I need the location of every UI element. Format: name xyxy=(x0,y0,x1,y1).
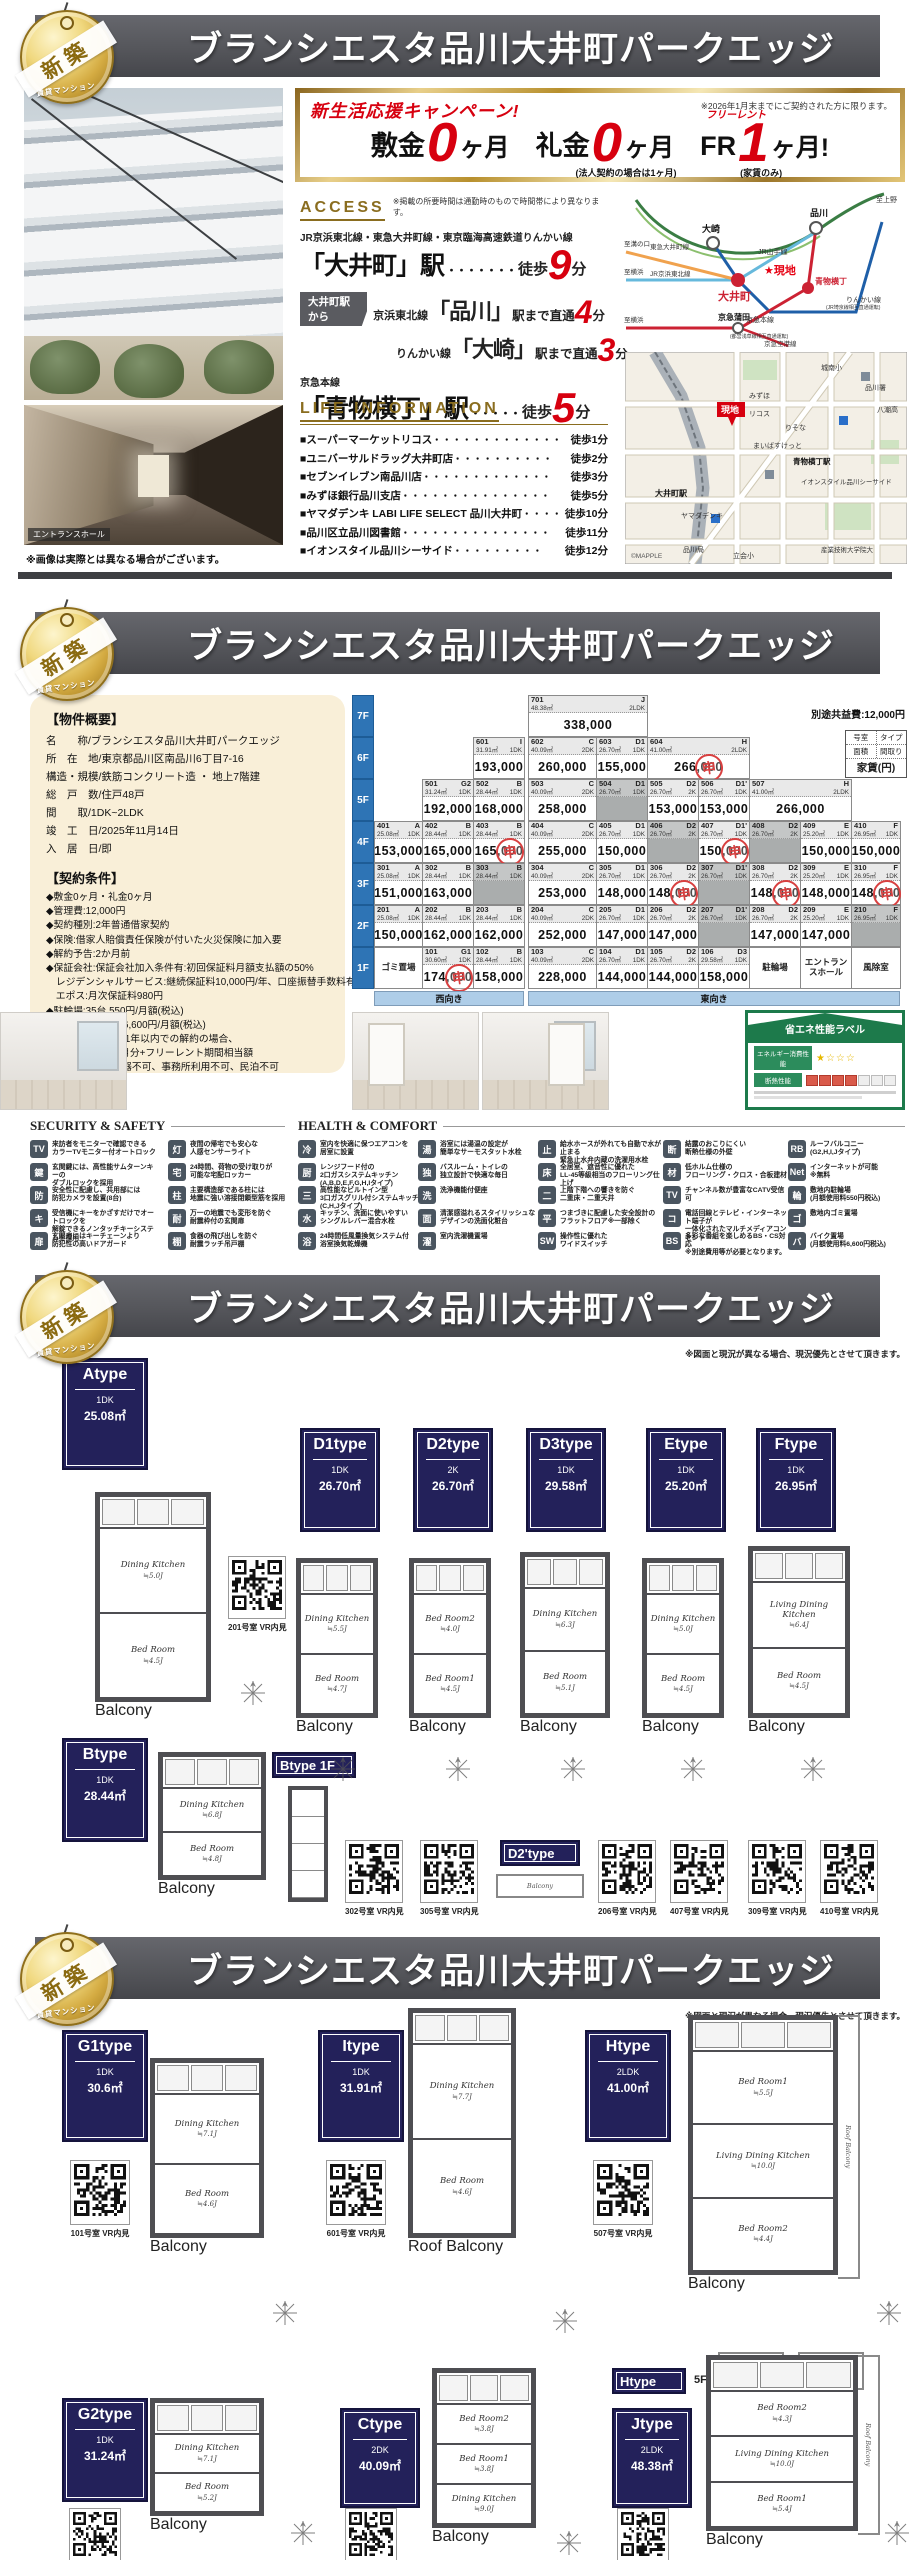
type-badge-d2'type: D2'type xyxy=(500,1840,580,1866)
line-label: 京浜東北線 xyxy=(373,307,428,323)
unit-plan: 1DK xyxy=(510,957,522,965)
unit-header: 402B xyxy=(423,822,473,831)
unit-header: 306D2 xyxy=(648,864,698,873)
terms-row: エポス:月次保証料980円 xyxy=(46,990,331,1004)
feature-item: SW操作性に優れたワイドスイッチ xyxy=(538,1232,666,1250)
room-label: Bed Room2 xyxy=(459,2415,509,2424)
security-heading: SECURITY & SAFETY xyxy=(30,1118,285,1134)
unit-cell-601: 601I31.91㎡1DK193,000 xyxy=(473,737,525,779)
plan-wall xyxy=(292,1844,324,1871)
unit-area: 25.08㎡ xyxy=(377,915,399,923)
feature-text: 主要構造部である柱には地震に強い溶接閉鎖型筋を採用 xyxy=(190,1186,285,1203)
map-label: イオンスタイル品川シーサイド xyxy=(801,477,892,486)
unit-header: 506D1' xyxy=(699,780,749,789)
interior-photo xyxy=(482,1012,609,1110)
plan-room: Bed Room2≒4.0J xyxy=(414,1595,486,1655)
unit-area: 41.00㎡ xyxy=(650,747,672,755)
unit-header: 310F xyxy=(852,864,900,873)
terms-row: ◆保証会社:保証会社加入条件有:初回保証料月額支払額の50% xyxy=(46,962,331,976)
unit-cell-505: 505D226.70㎡2K153,000 xyxy=(647,779,699,821)
unit-plan: 1DK xyxy=(408,831,420,839)
panel1-title-bar: ブランシエスタ品川大井町パークエッジ xyxy=(35,15,880,77)
type-badge-etype: Etype1DK25.20㎡ xyxy=(646,1428,726,1532)
unit-cell-410: 410F26.95㎡1DK150,000 xyxy=(851,821,901,863)
kitchen-box xyxy=(225,2405,257,2431)
vr-qr-12: 302号室 VR内見 xyxy=(345,1840,404,1917)
qr-caption: 302号室 VR内見 xyxy=(345,1906,404,1917)
unit-plan: 2DK xyxy=(582,915,594,923)
feature-text: 低ホルム仕様のフローリング・クロス・合板建材 xyxy=(685,1163,787,1180)
unit-header: 208D2 xyxy=(750,906,800,915)
plan-room: Bed Room2≒4.3J xyxy=(711,2392,853,2437)
unit-no: 206 xyxy=(650,906,663,915)
bath-box xyxy=(527,1559,551,1585)
unit-type: D1 xyxy=(635,780,645,789)
panel3-title-bar: ブランシエスタ品川大井町パークエッジ xyxy=(35,1275,880,1337)
unit-price: 147,000 xyxy=(801,923,851,946)
balcony: Balcony xyxy=(432,2528,536,2546)
plan-room: Living Dining Kitchen≒10.0J xyxy=(711,2437,853,2482)
direct-osaki: りんかい線 「大崎」 駅まで直通 3 分 xyxy=(396,332,605,364)
type-area: 26.70㎡ xyxy=(319,1477,361,1494)
unit-type: F xyxy=(893,822,898,831)
unit-cell-308: 308D226.70㎡2K148,000申 xyxy=(749,863,801,905)
unit-no: 501 xyxy=(425,780,438,789)
campaign-suffix: ヶ月 xyxy=(460,136,510,161)
balcony-row: Balcony xyxy=(432,2528,536,2546)
unit-header: 201A xyxy=(375,906,422,915)
plan-wall xyxy=(292,1871,324,1898)
facility-cell: ゴミ置場 xyxy=(374,947,423,989)
unit-area: 28.44㎡ xyxy=(476,873,498,881)
unit-area: 26.70㎡ xyxy=(701,873,723,881)
unit-cell-105: 105D226.70㎡2K144,000 xyxy=(647,947,699,989)
room-label: Bed Room2 xyxy=(757,2404,807,2413)
feature-text: 多彩な番組を楽しめるBS・CS対応※別途費用等が必要となります。 xyxy=(685,1232,791,1258)
station-name: 「品川」 xyxy=(428,294,512,326)
free-rent-label: フリーレント xyxy=(706,106,766,121)
floor-plan-G2: Dining Kitchen≒7.1JBed Room≒5.2J xyxy=(150,2398,264,2516)
unit-price: 193,000 xyxy=(474,755,524,778)
room-size: ≒3.8J xyxy=(474,2425,494,2433)
unit-area: 26.95㎡ xyxy=(854,915,876,923)
room-label: Dining Kitchen xyxy=(430,2082,495,2091)
feature-text: 夜間の帰宅でも安心な人感センサーライト xyxy=(190,1140,258,1157)
life-list-item: ■ユニバーサルドラッグ大井町店・・・・・・・・・・徒歩2分 xyxy=(300,450,608,469)
unit-subheader: 40.09㎡2DK xyxy=(529,957,596,966)
unit-area: 25.20㎡ xyxy=(803,915,825,923)
map-label: 立会小 xyxy=(733,551,754,560)
plan-room: Living Dining Kitchen≒10.0J xyxy=(693,2125,833,2198)
balcony-row: Balcony xyxy=(95,1702,211,1720)
kitchen-box xyxy=(696,1565,717,1591)
unit-area: 28.44㎡ xyxy=(476,789,498,797)
plan-room: Bed Room≒4.8J xyxy=(163,1833,261,1875)
kitchen-box xyxy=(479,2015,509,2041)
unit-subheader: 40.09㎡2DK xyxy=(529,915,596,924)
line-label: りんかい線 xyxy=(396,345,451,361)
campaign-item: フリーレントFR1ヶ月!(家賃のみ) xyxy=(700,119,829,166)
unit-no: 103 xyxy=(531,948,544,957)
room-label: Bed Room1 xyxy=(459,2455,509,2464)
unit-area: 26.70㎡ xyxy=(650,831,672,839)
health-heading-text: HEALTH & COMFORT xyxy=(298,1118,437,1134)
page-title: ブランシエスタ品川大井町パークエッジ xyxy=(187,21,835,72)
security-heading-text: SECURITY & SAFETY xyxy=(30,1118,165,1134)
terms-row: ◆管理費:12,000円 xyxy=(46,905,331,919)
unit-area: 25.20㎡ xyxy=(803,873,825,881)
balcony-label: Balcony xyxy=(409,1718,466,1735)
unit-no: 302 xyxy=(425,864,438,873)
kitchen-box xyxy=(787,2022,831,2048)
unit-subheader: 41.00㎡2LDK xyxy=(648,747,749,756)
unit-price xyxy=(750,839,800,862)
feature-text: 洗浄機能付便座 xyxy=(440,1186,488,1195)
unit-area: 26.70㎡ xyxy=(701,915,723,923)
qr-code xyxy=(228,1556,286,1619)
unit-area: 28.44㎡ xyxy=(425,873,447,881)
unit-price: 253,000 xyxy=(529,881,596,904)
balcony-row: Balcony xyxy=(158,1880,266,1898)
unit-plan: 1DK xyxy=(633,747,645,755)
life-list-item: ■ヤマダデンキ LABI LIFE SELECT 品川大井町・・・・徒歩10分 xyxy=(300,505,608,524)
qr-code xyxy=(420,1840,478,1903)
legend-plan: 間取り xyxy=(876,745,907,758)
delivery-locker-icon: 宅 xyxy=(168,1163,186,1181)
plan-room: Bed Room1≒3.8J xyxy=(437,2445,531,2485)
unit-price: 148,000 xyxy=(597,881,647,904)
feature-text: 来訪者をモニターで確認できるカラーTVモニター付オートロック xyxy=(52,1140,156,1157)
plan-wet-area xyxy=(413,2013,511,2045)
tv-monitor-autolock-icon: TV xyxy=(30,1140,48,1158)
feature-text: 上階下階への響きを防ぐ二重床・二重天井 xyxy=(560,1186,635,1203)
room-size: ≒4.5J xyxy=(673,1685,693,1693)
unit-area: 40.09㎡ xyxy=(531,789,553,797)
unit-subheader: 26.95㎡1DK xyxy=(852,831,900,840)
room-label: Dining Kitchen xyxy=(533,1610,598,1619)
map-label: まいばすけっと xyxy=(753,441,802,450)
unit-cell-403: 403B28.44㎡1DK165,000申 xyxy=(473,821,525,863)
plan-wet-area xyxy=(693,2020,833,2052)
unit-cell-304: 304C40.09㎡2DK253,000 xyxy=(528,863,597,905)
feature-item: TVチャンネル数が豊富なCATV受信可 xyxy=(663,1186,791,1204)
balcony-label: Balcony xyxy=(150,2238,207,2255)
map-label: 品川局 xyxy=(683,546,704,554)
floor-label: 3F xyxy=(352,863,374,905)
unit-no: 502 xyxy=(476,780,489,789)
room-size: ≒7.1J xyxy=(197,2455,217,2463)
unit-area: 26.70㎡ xyxy=(752,915,774,923)
unit-subheader: 26.95㎡1DK xyxy=(852,873,900,882)
type-name: Htype xyxy=(620,2374,656,2389)
feature-text: チャンネル数が豊富なCATV受信可 xyxy=(685,1186,791,1203)
unit-type: A xyxy=(415,906,420,915)
site-marker-label: ★現地 xyxy=(764,263,796,277)
toilet-box xyxy=(439,1565,460,1591)
poi-name: ■イオンスタイル品川シーサイド xyxy=(300,542,453,561)
unit-cell-405: 405D126.70㎡1DK150,000 xyxy=(596,821,648,863)
badge-divider xyxy=(769,1459,823,1460)
unit-area: 41.00㎡ xyxy=(752,789,774,797)
unit-subheader: 26.70㎡1DK xyxy=(699,915,749,924)
unit-price: 338,000 xyxy=(529,713,647,736)
unit-type: I xyxy=(520,738,522,747)
qr-caption: 201号室 VR内見 xyxy=(228,1622,287,1633)
unit-area: 28.44㎡ xyxy=(476,957,498,965)
room-size: ≒5.0J xyxy=(143,1572,163,1580)
unit-type: B xyxy=(466,864,471,873)
flyer-canvas: ブランシエスタ品川大井町パークエッジ 新築 賃貸マンション エントランスホール … xyxy=(0,0,911,2560)
qr-code xyxy=(598,1840,656,1903)
plan-room: Dining Kitchen≒7.7J xyxy=(413,2045,511,2140)
unit-cell-501: 501G231.24㎡1DK192,000 xyxy=(422,779,474,821)
walk-time: 徒歩12分 xyxy=(565,542,608,561)
unit-no: 503 xyxy=(531,780,544,789)
balcony: Balcony xyxy=(520,1718,610,1736)
type-badge-g2type: G2type1DK31.24㎡ xyxy=(62,2398,148,2502)
balcony: Balcony xyxy=(296,1718,378,1736)
unit-price: 252,000 xyxy=(529,923,596,946)
qr-caption: 309号室 VR内見 xyxy=(748,1906,807,1917)
unit-area: 31.91㎡ xyxy=(476,747,498,755)
room-size: ≒9.0J xyxy=(474,2505,494,2513)
unit-plan: 2DK xyxy=(582,873,594,881)
unit-header: 604H xyxy=(648,738,749,747)
feature-text: バイク置場(月額使用料6,600円税込) xyxy=(810,1232,886,1249)
toilet-box xyxy=(741,2022,785,2048)
unit-cell-307: 307D1'26.70㎡1DK xyxy=(698,863,750,905)
roof-balcony-label: Roof Balcony xyxy=(864,2423,872,2466)
room-label: Bed Room xyxy=(315,1675,359,1684)
feature-text: 給水ホースが外れても自動で水が止まる緊急止水弁内蔵の洗濯用水栓 xyxy=(560,1140,666,1166)
unit-price: 163,000 xyxy=(423,881,473,904)
plan-room: Dining Kitchen≒6.8J xyxy=(163,1789,261,1833)
minutes-unit: 分 xyxy=(592,305,605,324)
qr-code xyxy=(70,2160,130,2225)
floor-label: 5F xyxy=(352,779,374,821)
plan-room: Dining Kitchen≒7.1J xyxy=(155,2095,259,2165)
outline-row: 構造・規模/鉄筋コンクリート造 ・ 地上7階建 xyxy=(46,768,331,786)
floor-plan-F: Living Dining Kitchen≒6.4JBed Room≒4.5J xyxy=(748,1546,850,1718)
unit-price: 153,000 xyxy=(648,797,698,820)
bath-box xyxy=(713,2362,758,2388)
type-area: 26.70㎡ xyxy=(432,1477,474,1494)
unit-header: 204C xyxy=(529,906,596,915)
badge-divider xyxy=(353,2439,407,2440)
type-badge-jtype: Jtype2LDK48.38㎡ xyxy=(612,2408,692,2508)
bath-box xyxy=(695,2022,739,2048)
type-plan: 1DK xyxy=(96,1395,114,1405)
feature-text: 清潔感溢れるスタイリッシュなデザインの洗面化粧台 xyxy=(440,1209,535,1226)
unit-plan: 1DK xyxy=(837,915,849,923)
vr-qr-23: 507号室 VR内見 xyxy=(593,2160,653,2239)
table-floor-row: 2F201A25.08㎡1DK150,000202B28.44㎡1DK162,0… xyxy=(352,905,908,947)
map-label-oimachi-sta: 大井町駅 xyxy=(655,488,688,498)
unit-no: 506 xyxy=(701,780,714,789)
direct-label: 駅まで直通 xyxy=(512,305,575,324)
walk-time: 徒歩11分 xyxy=(565,524,608,543)
line-yamanote: JR山手線 xyxy=(758,247,788,256)
unit-header: 403B xyxy=(474,822,524,831)
plan-body: Dining Kitchen≒5.0JBed Room≒4.5J xyxy=(642,1558,724,1718)
qr-code xyxy=(69,2508,121,2560)
room-label: Bed Room1 xyxy=(757,2495,807,2504)
unit-price: 147,000 xyxy=(648,923,698,946)
room-size: ≒6.4J xyxy=(789,1621,809,1629)
type-badge-ftype: Ftype1DK26.95㎡ xyxy=(756,1428,836,1532)
plan-body: Dining Kitchen≒7.1JBed Room≒4.6J xyxy=(150,2058,264,2238)
unit-header: 404C xyxy=(529,822,596,831)
unit-subheader: 30.60㎡1DK xyxy=(423,957,473,966)
catv-icon: TV xyxy=(663,1186,681,1204)
unit-area: 25.20㎡ xyxy=(803,831,825,839)
room-size: ≒4.0J xyxy=(440,1625,460,1633)
campaign-banner: 新生活応援キャンペーン! ※2026年1月末までにご契約された方に限ります。 敷… xyxy=(295,88,905,182)
unit-header: 106D3 xyxy=(699,948,749,957)
unit-no: 402 xyxy=(425,822,438,831)
garbage-site-icon: ゴ xyxy=(788,1209,806,1227)
feature-text: レンジフード付の2口ガスシステムキッチン(A,B,D,E,F,G,H,Iタイプ) xyxy=(320,1163,398,1189)
qr-caption: 305号室 VR内見 xyxy=(420,1906,479,1917)
plan-wall xyxy=(292,1817,324,1844)
unit-no: 404 xyxy=(531,822,544,831)
unit-area: 28.44㎡ xyxy=(476,915,498,923)
station-oimachi: 大井町 xyxy=(718,289,751,303)
energy-label-title: 省エネ性能ラベル xyxy=(748,1013,902,1043)
unit-type: D2 xyxy=(686,948,696,957)
line-keikyu-note: (都営浅草線相互直通運転) xyxy=(730,333,789,340)
unit-price: 151,000 xyxy=(375,881,422,904)
unit-area: 26.70㎡ xyxy=(701,831,723,839)
room-size: ≒4.4J xyxy=(753,2235,773,2243)
unit-type: D1' xyxy=(736,906,747,915)
unit-area: 26.70㎡ xyxy=(599,747,621,755)
orientation-west: 西向き xyxy=(374,991,524,1006)
page-title: ブランシエスタ品川大井町パークエッジ xyxy=(187,1281,835,1332)
unit-plan: 1DK xyxy=(837,831,849,839)
type-area: 31.91㎡ xyxy=(340,2079,382,2096)
unit-subheader: 26.70㎡1DK xyxy=(699,789,749,798)
feature-item: 二上階下階への響きを防ぐ二重床・二重天井 xyxy=(538,1186,666,1204)
direct-shinagawa: 京浜東北線 「品川」 駅まで直通 4 分 xyxy=(373,294,605,326)
campaign-suffix: ヶ月! xyxy=(771,136,829,161)
unit-cell-310: 310F26.95㎡1DK148,000申 xyxy=(851,863,901,905)
unit-subheader: 25.08㎡1DK xyxy=(375,831,422,840)
type-plan: 1DK xyxy=(557,1465,575,1475)
unit-header: 405D1 xyxy=(597,822,647,831)
unit-header: 202B xyxy=(423,906,473,915)
unit-cell-202: 202B28.44㎡1DK162,000 xyxy=(422,905,474,947)
type-plan: 2DK xyxy=(371,2445,389,2455)
feature-text: 結露のおこりにくい断熱仕様の外壁 xyxy=(685,1140,746,1157)
compass-icon xyxy=(240,1680,266,1711)
shrub xyxy=(114,344,184,398)
feature-item: ゴ敷地内ゴミ置場 xyxy=(788,1209,911,1227)
feature-text: 万一の地震でも変形を防ぐ耐震枠付の玄関扉 xyxy=(190,1209,272,1226)
unit-subheader: 28.44㎡1DK xyxy=(474,831,524,840)
table-floor-row: 5F501G231.24㎡1DK192,000502B28.44㎡1DK168,… xyxy=(352,779,908,821)
access-note: ※掲載の所要時間は通勤時のもので時間帯により異なります。 xyxy=(393,196,605,221)
type-name: Jtype xyxy=(631,2416,673,2434)
unit-plan: 1DK xyxy=(510,915,522,923)
unit-cell-309: 309E25.20㎡1DK148,000 xyxy=(800,863,852,905)
type-name: Itype xyxy=(342,2038,379,2056)
unit-subheader: 25.20㎡1DK xyxy=(801,873,851,882)
unit-plan: 1DK xyxy=(633,873,645,881)
walk-time: 徒歩3分 xyxy=(571,468,608,487)
balcony-row: Balcony xyxy=(748,1718,850,1736)
unit-subheader: 26.70㎡2K xyxy=(750,831,800,840)
unit-type: C xyxy=(589,780,594,789)
walk-label: 徒歩 xyxy=(518,258,548,279)
map-label: 産業技術大学院大 xyxy=(821,545,874,554)
unit-price: 158,000 xyxy=(699,965,749,988)
room-label: Dining Kitchen xyxy=(121,1561,186,1570)
unit-price: 153,000 xyxy=(375,839,422,862)
feature-text: バスルーム・トイレの独立設計で快適な毎日 xyxy=(440,1163,508,1180)
unit-subheader: 40.09㎡2DK xyxy=(529,873,596,882)
unit-header: 302B xyxy=(423,864,473,873)
unit-no: 207 xyxy=(701,906,714,915)
bath-box xyxy=(165,1759,195,1785)
room-label: Dining Kitchen xyxy=(175,2444,240,2453)
table-floor-row: 6F601I31.91㎡1DK193,000602C40.09㎡2DK260,0… xyxy=(352,737,908,779)
room-size: ≒4.7J xyxy=(327,1685,347,1693)
health-heading: HEALTH & COMFORT xyxy=(298,1118,905,1134)
unit-area: 28.44㎡ xyxy=(476,831,498,839)
unit-area: 26.70㎡ xyxy=(650,789,672,797)
campaign-item: 敷金0ヶ月 xyxy=(371,119,510,166)
type-plan: 2K xyxy=(447,1465,458,1475)
terms-row: ◆解約予告:2か月前 xyxy=(46,948,331,962)
type-badge-htype: Htype xyxy=(612,2368,686,2394)
feature-text: 敷地内ゴミ置場 xyxy=(810,1209,858,1218)
terms-row: ◆保険:借家人賠償責任保険が付いた火災保険に加入要 xyxy=(46,934,331,948)
unit-area: 26.70㎡ xyxy=(752,873,774,881)
gas-kitchen3-icon: 三 xyxy=(298,1186,316,1204)
bath-box xyxy=(303,1565,324,1591)
unit-plan: 1DK xyxy=(510,873,522,881)
unit-header: 102B xyxy=(474,948,524,957)
unit-subheader: 26.70㎡2K xyxy=(648,831,698,840)
feature-text: ルーフバルコニー(G2,H,I,Jタイプ) xyxy=(810,1140,864,1157)
unit-header: 504D1 xyxy=(597,780,647,789)
outline-row: 総 戸 数/住戸48戸 xyxy=(46,786,331,804)
balcony: Balcony xyxy=(642,1718,724,1736)
qr-caption: 410号室 VR内見 xyxy=(820,1906,879,1917)
minutes: 3 xyxy=(598,338,616,364)
qr-code xyxy=(326,2160,386,2225)
type-name: Ftype xyxy=(775,1436,818,1454)
room-size: ≒5.2J xyxy=(197,2494,217,2502)
unit-type: G1 xyxy=(461,948,471,957)
leader-dots: ・・・・・・・・・・・・・・・ xyxy=(401,487,551,506)
poi-name: ■ヤマダデンキ LABI LIFE SELECT 品川大井町 xyxy=(300,505,522,524)
floor-label: 1F xyxy=(352,947,374,989)
table-floor-row: 3F301A25.08㎡1DK151,000302B28.44㎡1DK163,0… xyxy=(352,863,908,905)
unit-no: 701 xyxy=(531,696,544,705)
map-label: 品川署 xyxy=(865,384,886,392)
unit-plan: 1DK xyxy=(633,957,645,965)
map-label: りそな xyxy=(785,424,806,432)
room-label: Living Dining Kitchen xyxy=(753,1601,845,1620)
room-size: ≒5.5J xyxy=(753,2089,773,2097)
unit-subheader: 26.70㎡2K xyxy=(750,873,800,882)
feature-item: 材低ホルム仕様のフローリング・クロス・合板建材 xyxy=(663,1163,791,1181)
poi-name: ■スーパーマーケットリコス xyxy=(300,431,432,450)
floor-plan-B1F xyxy=(288,1786,328,1902)
minutes-unit: 分 xyxy=(571,258,586,279)
